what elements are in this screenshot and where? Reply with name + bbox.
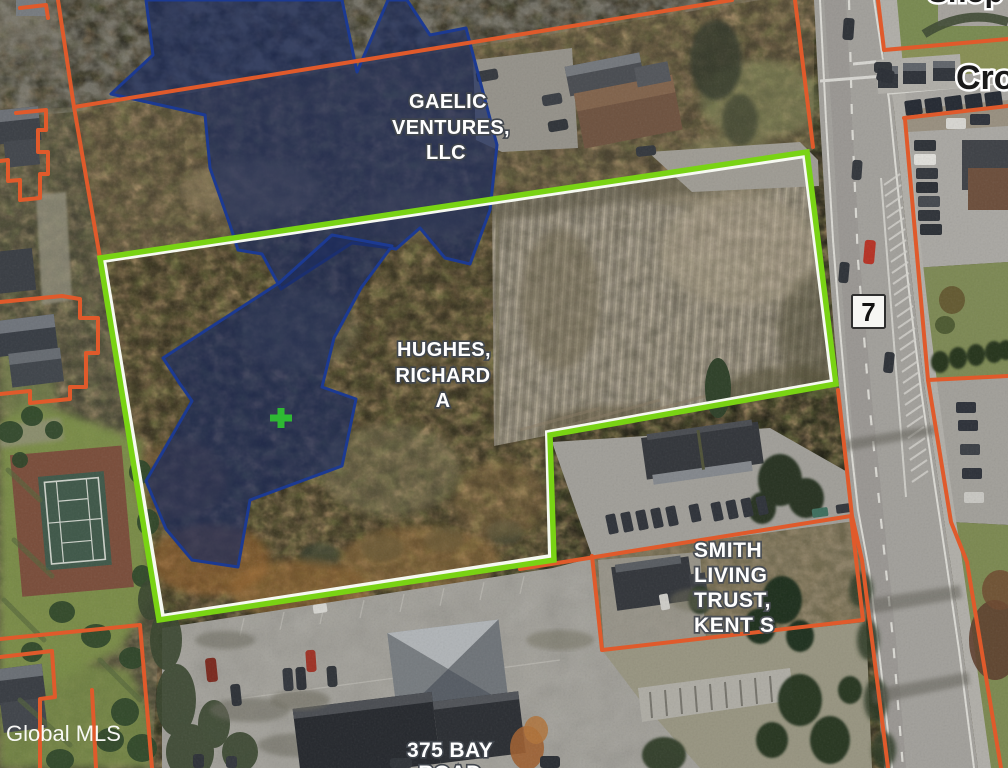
svg-text:LIVING: LIVING xyxy=(694,564,768,587)
svg-text:LLC: LLC xyxy=(426,142,466,164)
svg-text:375 BAY: 375 BAY xyxy=(407,739,493,762)
svg-text:Shop: Shop xyxy=(928,0,1003,9)
svg-text:GAELIC: GAELIC xyxy=(409,91,487,113)
svg-text:TRUST,: TRUST, xyxy=(694,589,771,612)
svg-text:VENTURES,: VENTURES, xyxy=(392,117,510,139)
svg-text:Global MLS: Global MLS xyxy=(6,721,121,746)
svg-text:Cro: Cro xyxy=(956,59,1008,97)
svg-text:7: 7 xyxy=(861,297,875,327)
svg-text:A: A xyxy=(436,390,451,412)
svg-text:RICHARD: RICHARD xyxy=(395,365,490,387)
svg-text:HUGHES,: HUGHES, xyxy=(397,339,491,361)
svg-text:KENT S: KENT S xyxy=(694,614,775,637)
svg-text:SMITH: SMITH xyxy=(694,539,762,562)
svg-text:ROAD: ROAD xyxy=(418,762,481,768)
